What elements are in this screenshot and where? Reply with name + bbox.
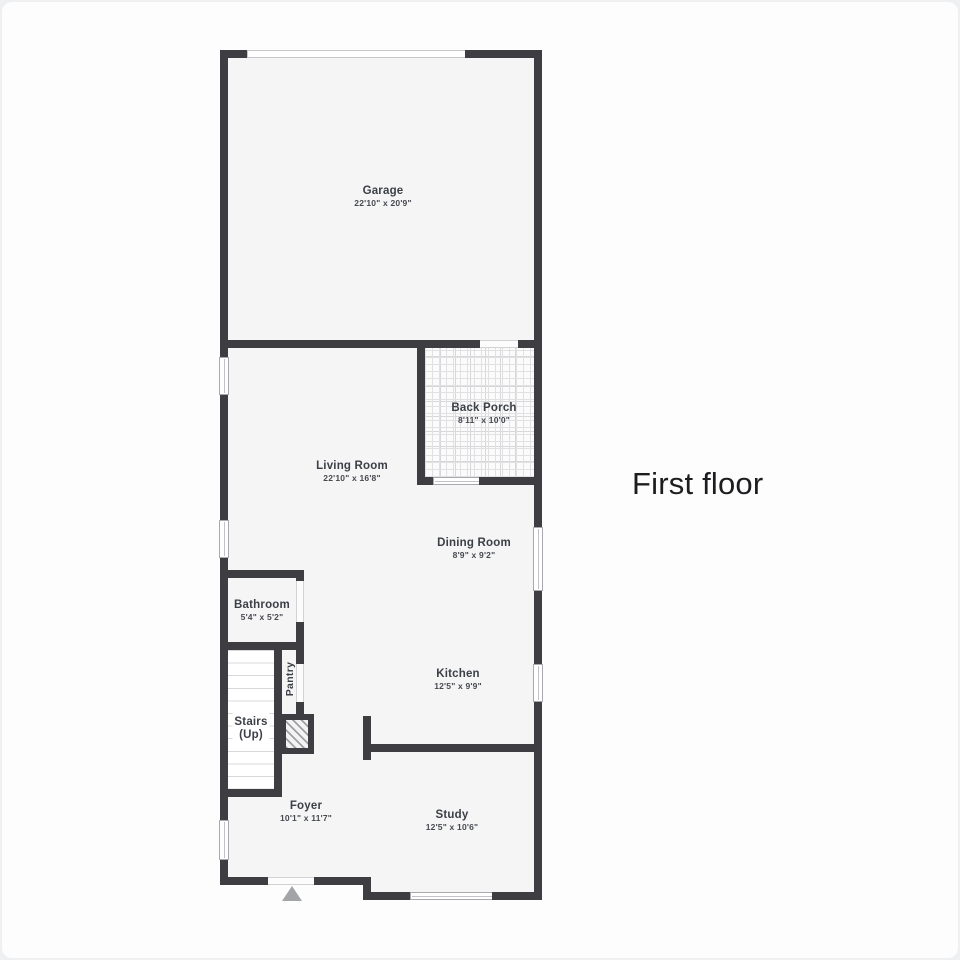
stairs-line1: Stairs bbox=[234, 716, 267, 729]
room-label-pantry: Pantry bbox=[284, 662, 296, 696]
wall-bathroom-top bbox=[220, 570, 304, 578]
foyer-dims: 10'1" x 11'7" bbox=[280, 814, 332, 824]
study-name: Study bbox=[426, 809, 479, 822]
entry-arrow-icon bbox=[282, 886, 302, 901]
foyer-name: Foyer bbox=[280, 800, 332, 813]
room-label-stairs: Stairs (Up) bbox=[232, 713, 269, 745]
wall-foyer-bottom-left bbox=[220, 877, 270, 885]
living-room-window-1 bbox=[219, 357, 229, 395]
wall-outer-left bbox=[220, 50, 228, 885]
wall-porch-left bbox=[417, 344, 425, 485]
wall-kitchen-study bbox=[363, 744, 542, 752]
room-label-garage: Garage 22'10" x 20'9" bbox=[354, 185, 411, 209]
bathroom-dims: 5'4" x 5'2" bbox=[234, 613, 290, 623]
wall-outer-right bbox=[534, 50, 542, 900]
wall-porch-bottom-right bbox=[479, 477, 542, 485]
back-porch-name: Back Porch bbox=[451, 402, 516, 415]
page: { "page": { "title": "First floor" }, "f… bbox=[0, 0, 960, 960]
back-porch-dims: 8'11" x 10'0" bbox=[451, 416, 516, 426]
closet-hatch bbox=[280, 714, 314, 754]
front-door-opening bbox=[268, 877, 316, 885]
room-label-bathroom: Bathroom 5'4" x 5'2" bbox=[234, 599, 290, 623]
wall-stairs-bottom bbox=[220, 789, 282, 797]
porch-slider-door bbox=[433, 477, 481, 485]
wall-bathroom-bottom bbox=[220, 642, 304, 650]
room-label-living-room: Living Room 22'10" x 16'8" bbox=[316, 460, 388, 484]
floor-plan-canvas: Garage 22'10" x 20'9" Back Porch 8'11" x… bbox=[2, 2, 958, 958]
wall-outer-top-right bbox=[465, 50, 542, 58]
wall-garage-bottom-right bbox=[518, 340, 542, 348]
wall-outer-top-left bbox=[220, 50, 249, 58]
stairs-line2: (Up) bbox=[234, 729, 267, 742]
wall-study-bottom-left bbox=[363, 892, 412, 900]
room-label-study: Study 12'5" x 10'6" bbox=[426, 809, 479, 833]
kitchen-window bbox=[533, 664, 543, 702]
floor-title: First floor bbox=[632, 466, 763, 502]
room-label-back-porch: Back Porch 8'11" x 10'0" bbox=[451, 402, 516, 426]
study-dims: 12'5" x 10'6" bbox=[426, 823, 479, 833]
living-room-window-2 bbox=[219, 520, 229, 558]
dining-room-window bbox=[533, 527, 543, 591]
garage-door-opening bbox=[247, 50, 467, 58]
wall-kitchen-stub bbox=[363, 716, 371, 760]
garage-name: Garage bbox=[354, 185, 411, 198]
bathroom-name: Bathroom bbox=[234, 599, 290, 612]
wall-garage-bottom-left bbox=[220, 340, 482, 348]
study-window bbox=[410, 892, 494, 900]
dining-room-dims: 8'9" x 9'2" bbox=[437, 551, 511, 561]
garage-porch-door-opening bbox=[480, 340, 520, 348]
room-label-kitchen: Kitchen 12'5" x 9'9" bbox=[434, 668, 482, 692]
living-room-name: Living Room bbox=[316, 460, 388, 473]
room-label-foyer: Foyer 10'1" x 11'7" bbox=[280, 800, 332, 824]
kitchen-dims: 12'5" x 9'9" bbox=[434, 682, 482, 692]
pantry-door-opening bbox=[296, 664, 304, 704]
garage-dims: 22'10" x 20'9" bbox=[354, 199, 411, 209]
kitchen-name: Kitchen bbox=[434, 668, 482, 681]
room-label-dining-room: Dining Room 8'9" x 9'2" bbox=[437, 537, 511, 561]
dining-room-name: Dining Room bbox=[437, 537, 511, 550]
foyer-window bbox=[219, 820, 229, 860]
wall-study-bottom-right bbox=[492, 892, 542, 900]
bathroom-door-opening bbox=[296, 581, 304, 623]
living-room-dims: 22'10" x 16'8" bbox=[316, 474, 388, 484]
